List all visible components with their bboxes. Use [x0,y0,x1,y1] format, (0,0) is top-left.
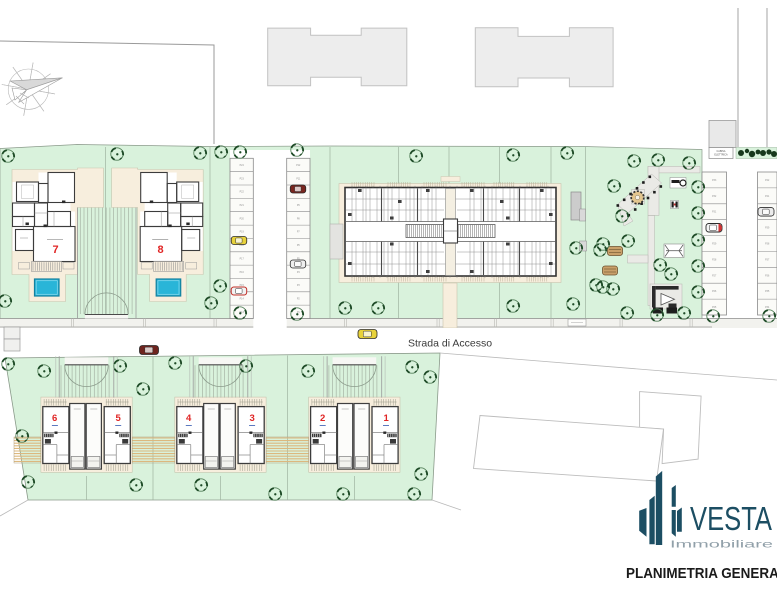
svg-text:ELETTRICA: ELETTRICA [714,153,728,156]
svg-text:P20: P20 [240,218,245,220]
svg-text:1: 1 [383,413,389,424]
svg-text:P31: P31 [712,212,717,214]
svg-text:P23: P23 [240,178,245,180]
svg-text:P36: P36 [765,275,770,277]
svg-text:P29: P29 [712,244,717,246]
svg-text:3: 3 [250,413,255,424]
svg-text:P22: P22 [240,192,245,194]
svg-text:P14: P14 [240,299,245,301]
svg-text:P27: P27 [712,275,717,277]
svg-text:P25: P25 [712,307,717,309]
svg-text:P21: P21 [240,205,245,207]
svg-text:P28: P28 [712,259,717,261]
svg-text:P41: P41 [765,196,770,198]
svg-text:2: 2 [320,413,325,424]
svg-text:P17: P17 [240,258,245,260]
svg-text:8: 8 [157,244,163,256]
svg-text:P32: P32 [712,196,717,198]
svg-text:P42: P42 [765,180,770,182]
svg-text:P38: P38 [765,244,770,246]
svg-text:Immobiliare: Immobiliare [670,540,774,551]
svg-text:P33: P33 [712,180,717,182]
svg-text:4: 4 [186,413,192,424]
svg-text:5: 5 [116,413,122,424]
svg-text:P34: P34 [765,307,770,309]
svg-text:PLANIMETRIA GENERALE: PLANIMETRIA GENERALE [626,565,777,582]
svg-text:P12: P12 [296,165,301,167]
svg-text:6: 6 [52,413,57,424]
svg-text:Strada di Accesso: Strada di Accesso [408,338,492,350]
svg-text:7: 7 [52,244,58,256]
svg-text:P24: P24 [240,165,245,167]
svg-text:P18: P18 [240,245,245,247]
svg-text:P37: P37 [765,259,770,261]
svg-text:P35: P35 [765,291,770,293]
svg-text:P26: P26 [712,291,717,293]
svg-text:P39: P39 [765,228,770,230]
svg-text:P19: P19 [240,232,245,234]
svg-text:P16: P16 [240,272,245,274]
svg-text:VESTA: VESTA [690,500,772,537]
